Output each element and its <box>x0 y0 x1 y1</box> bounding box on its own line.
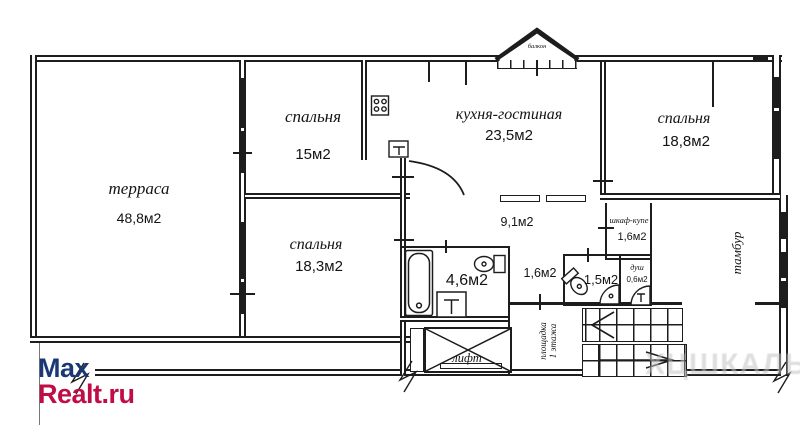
toilet-icon <box>475 256 506 273</box>
wall-wc-shower-divider <box>619 256 621 306</box>
landing-label-line2: 1 этажа <box>548 313 558 369</box>
stove-icon <box>372 96 389 115</box>
logo-line2: Realt.ru <box>38 382 135 408</box>
kitchen-sink-icon <box>389 141 408 157</box>
service-shaft <box>410 328 424 372</box>
window-pier <box>239 222 246 279</box>
balcony-flue <box>536 36 538 76</box>
wall-top <box>30 55 782 62</box>
door-tick <box>598 227 614 229</box>
wall-bathroom-top <box>400 246 508 248</box>
wall-pier <box>753 55 768 62</box>
bathroom-area: 4,6м2 <box>446 272 488 290</box>
wardrobe-label: шкаф-купе <box>609 215 648 225</box>
window-pier <box>772 111 781 159</box>
bedroom-bottom-label: спальня <box>290 236 343 254</box>
corridor-area: 1,6м2 <box>524 266 557 280</box>
wc-area: 1,5м2 <box>584 272 618 287</box>
bedroom-top-label: спальня <box>285 107 341 127</box>
door-tick <box>392 176 414 178</box>
tambour-label: тамбур <box>729 225 745 281</box>
shower-area: 0,6м2 <box>626 275 647 284</box>
landing-label-line1: площадка <box>538 313 548 369</box>
lift-label: лифт <box>452 351 481 366</box>
vent-stub <box>546 195 586 202</box>
window-pier <box>779 281 788 308</box>
bedroom-right-area: 18,8м2 <box>662 133 710 150</box>
balcony-label: балкон <box>528 43 547 50</box>
wall-pilaster <box>712 62 714 107</box>
vent-stub <box>500 195 540 202</box>
wall-central <box>400 158 406 376</box>
wall-terrace-bottom <box>30 336 415 343</box>
wardrobe-area: 1,6м2 <box>618 231 647 243</box>
wall-landing-top <box>508 302 682 305</box>
logo-line1: Max <box>38 356 135 382</box>
kitchen-living-label: кухня-гостиная <box>456 106 562 124</box>
wall-left <box>30 55 37 343</box>
window-pier <box>779 252 788 278</box>
terrace-area: 48,8м2 <box>117 210 162 226</box>
wall-kitchen-left <box>361 60 367 160</box>
door-tick <box>593 180 613 182</box>
wall-bedroom-right-left <box>600 62 606 193</box>
terrace-label: терраса <box>109 179 170 199</box>
bedroom-top-area: 15м2 <box>295 146 330 163</box>
door-tick <box>394 239 414 241</box>
door-tick <box>539 294 541 310</box>
wall-wardrobe-bottom <box>605 258 652 260</box>
window-tick <box>230 293 255 295</box>
bathtub-icon <box>406 251 433 316</box>
floor-plan: терраса 48,8м2 спальня 15м2 кухня-гостин… <box>0 0 800 432</box>
wall-wc-top <box>563 254 652 256</box>
wall-bedrooms-divider <box>245 193 410 199</box>
hallway-area: 9,1м2 <box>501 215 534 229</box>
bedroom-bottom-area: 18,3м2 <box>295 258 343 275</box>
stairs-upper-flight <box>582 308 683 342</box>
door-tick <box>445 240 447 253</box>
window-pier <box>772 77 781 108</box>
window-pier <box>239 282 246 314</box>
watermark-text: ХЦШКАЛЬ <box>645 348 800 382</box>
window-pier <box>239 78 246 128</box>
window-tick <box>233 152 252 154</box>
wall-niche-side <box>465 62 467 85</box>
site-logo: Max Realt.ru <box>38 356 135 407</box>
door-tick <box>587 248 589 262</box>
wall-wc-left <box>563 254 565 306</box>
wall-niche-side <box>428 62 430 82</box>
wall-bathroom-bottom <box>400 316 508 322</box>
wall-wardrobe-left <box>605 203 607 260</box>
window-pier <box>779 212 788 239</box>
kitchen-living-area: 23,5м2 <box>485 127 533 144</box>
bedroom-right-label: спальня <box>658 110 711 128</box>
wall-bedroom-right-bottom <box>600 193 780 200</box>
landing-label: площадка 1 этажа <box>538 313 560 369</box>
shower-label: душ <box>630 263 644 272</box>
door-arc-icon <box>409 161 464 195</box>
bathroom-sink-icon <box>437 292 466 317</box>
wall-tambour-stub <box>755 302 781 305</box>
